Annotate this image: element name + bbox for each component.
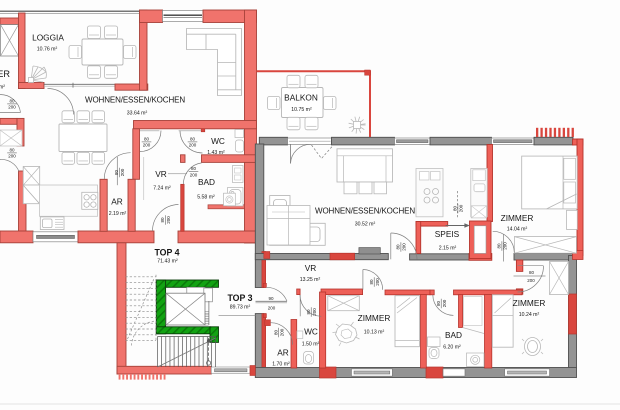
svg-text:AR: AR — [277, 348, 289, 358]
svg-text:ZIMMER: ZIMMER — [513, 298, 546, 308]
svg-text:80: 80 — [497, 243, 502, 249]
svg-text:WOHNEN/ESSEN/KOCHEN: WOHNEN/ESSEN/KOCHEN — [85, 96, 185, 105]
svg-text:80: 80 — [436, 301, 441, 307]
svg-text:80: 80 — [369, 279, 374, 285]
svg-text:200: 200 — [459, 204, 464, 212]
svg-text:200: 200 — [402, 243, 407, 251]
svg-text:30.52 m²: 30.52 m² — [355, 222, 376, 228]
svg-text:200: 200 — [312, 308, 317, 316]
svg-text:13.25 m²: 13.25 m² — [300, 277, 321, 283]
svg-text:200: 200 — [143, 143, 151, 148]
svg-text:200: 200 — [375, 278, 380, 286]
svg-text:80: 80 — [191, 166, 197, 171]
svg-text:m²: m² — [0, 85, 5, 91]
svg-text:200: 200 — [503, 242, 508, 250]
svg-text:2.15 m²: 2.15 m² — [439, 246, 457, 252]
svg-text:200: 200 — [8, 154, 16, 159]
svg-text:14.04 m²: 14.04 m² — [507, 227, 528, 233]
svg-text:200: 200 — [189, 143, 197, 148]
svg-text:ZIMMER: ZIMMER — [501, 213, 534, 223]
svg-text:90: 90 — [268, 296, 274, 301]
svg-text:80: 80 — [144, 137, 150, 142]
svg-text:1.50 m²: 1.50 m² — [302, 342, 320, 348]
svg-text:200: 200 — [190, 172, 198, 177]
svg-text:ZIMMER: ZIMMER — [358, 313, 391, 323]
svg-text:80: 80 — [273, 330, 278, 336]
svg-text:BALKON: BALKON — [284, 93, 318, 103]
svg-text:TOP 3: TOP 3 — [227, 293, 252, 303]
svg-text:200: 200 — [166, 216, 171, 224]
svg-text:200: 200 — [280, 328, 285, 336]
svg-text:89.73 m²: 89.73 m² — [230, 305, 251, 311]
svg-text:80: 80 — [396, 244, 401, 250]
svg-text:TOP 4: TOP 4 — [154, 248, 179, 258]
svg-text:WOHNEN/ESSEN/KOCHEN: WOHNEN/ESSEN/KOCHEN — [315, 207, 415, 216]
svg-text:7.24 m²: 7.24 m² — [153, 186, 171, 192]
svg-text:VR: VR — [305, 263, 317, 273]
svg-text:WC: WC — [211, 136, 225, 146]
svg-text:10.13 m²: 10.13 m² — [364, 330, 385, 336]
svg-text:BAD: BAD — [198, 177, 215, 187]
svg-text:LOGGIA: LOGGIA — [32, 33, 64, 43]
svg-text:1.70 m²: 1.70 m² — [272, 362, 290, 368]
svg-text:1.43 m²: 1.43 m² — [207, 150, 225, 156]
svg-text:10.76 m²: 10.76 m² — [37, 47, 58, 53]
svg-text:VR: VR — [155, 169, 167, 179]
svg-text:5.58 m²: 5.58 m² — [197, 195, 215, 201]
svg-text:80: 80 — [190, 137, 196, 142]
svg-text:2.19 m²: 2.19 m² — [109, 211, 127, 217]
svg-text:200: 200 — [442, 299, 447, 307]
svg-text:33.64 m²: 33.64 m² — [127, 111, 148, 117]
svg-text:80: 80 — [306, 309, 311, 315]
svg-text:WC: WC — [304, 327, 318, 337]
svg-text:200: 200 — [268, 305, 276, 310]
svg-text:AR: AR — [111, 197, 123, 207]
svg-text:80: 80 — [453, 206, 458, 212]
svg-text:200: 200 — [8, 105, 16, 110]
svg-text:200: 200 — [120, 168, 125, 176]
svg-text:71.43 m²: 71.43 m² — [157, 259, 178, 265]
svg-text:80: 80 — [529, 270, 535, 275]
svg-text:80: 80 — [9, 99, 15, 104]
svg-text:80: 80 — [114, 170, 119, 176]
svg-text:BAD: BAD — [445, 330, 462, 340]
svg-text:10.75 m²: 10.75 m² — [291, 107, 312, 113]
svg-text:SPEIS: SPEIS — [435, 229, 460, 239]
svg-text:80: 80 — [160, 217, 165, 223]
svg-text:80: 80 — [9, 148, 15, 153]
svg-text:200: 200 — [527, 278, 535, 283]
svg-text:6.20 m²: 6.20 m² — [443, 345, 461, 351]
svg-text:ER: ER — [0, 69, 10, 79]
svg-text:10.24 m²: 10.24 m² — [519, 312, 540, 318]
